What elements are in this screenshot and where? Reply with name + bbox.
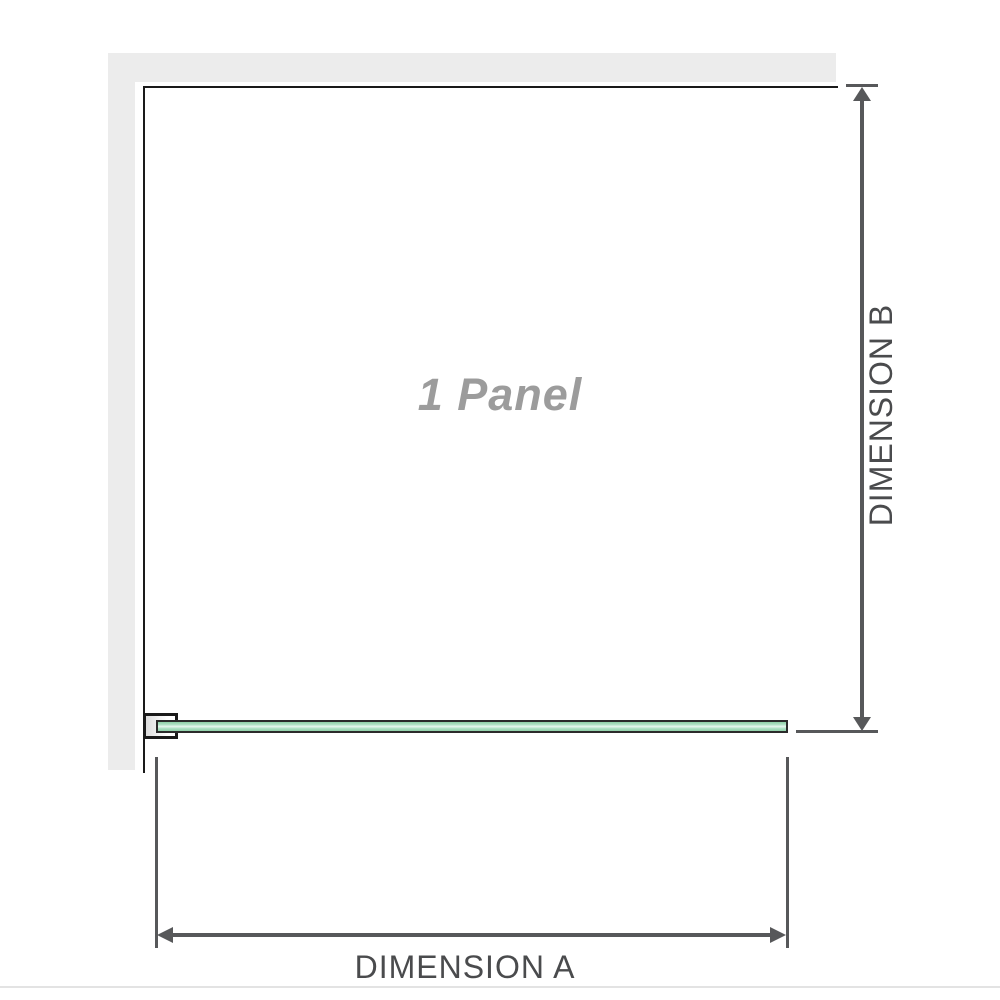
glass-panel	[156, 720, 788, 733]
dimension-a-arrowhead-right-icon	[770, 927, 786, 943]
wall-top	[108, 53, 836, 82]
dimension-b-arrowhead-up-icon	[853, 87, 871, 101]
panel-left-edge	[143, 86, 145, 773]
panel-count-label: 1 Panel	[350, 370, 650, 420]
dimension-a-tick-right	[786, 757, 789, 948]
dimension-a-line	[173, 933, 770, 937]
wall-left	[108, 53, 135, 770]
panel-top-edge	[143, 86, 838, 88]
dimension-b-arrowhead-down-icon	[853, 717, 871, 731]
dimension-b-label: DIMENSION B	[861, 215, 901, 615]
dimension-a-label: DIMENSION A	[315, 949, 615, 985]
bottom-divider	[0, 986, 1000, 988]
dimension-a-arrowhead-left-icon	[157, 927, 173, 943]
dimension-a-tick-left	[155, 757, 158, 948]
panel-dimension-diagram: 1 Panel DIMENSION B DIMENSION A	[0, 0, 1000, 1000]
